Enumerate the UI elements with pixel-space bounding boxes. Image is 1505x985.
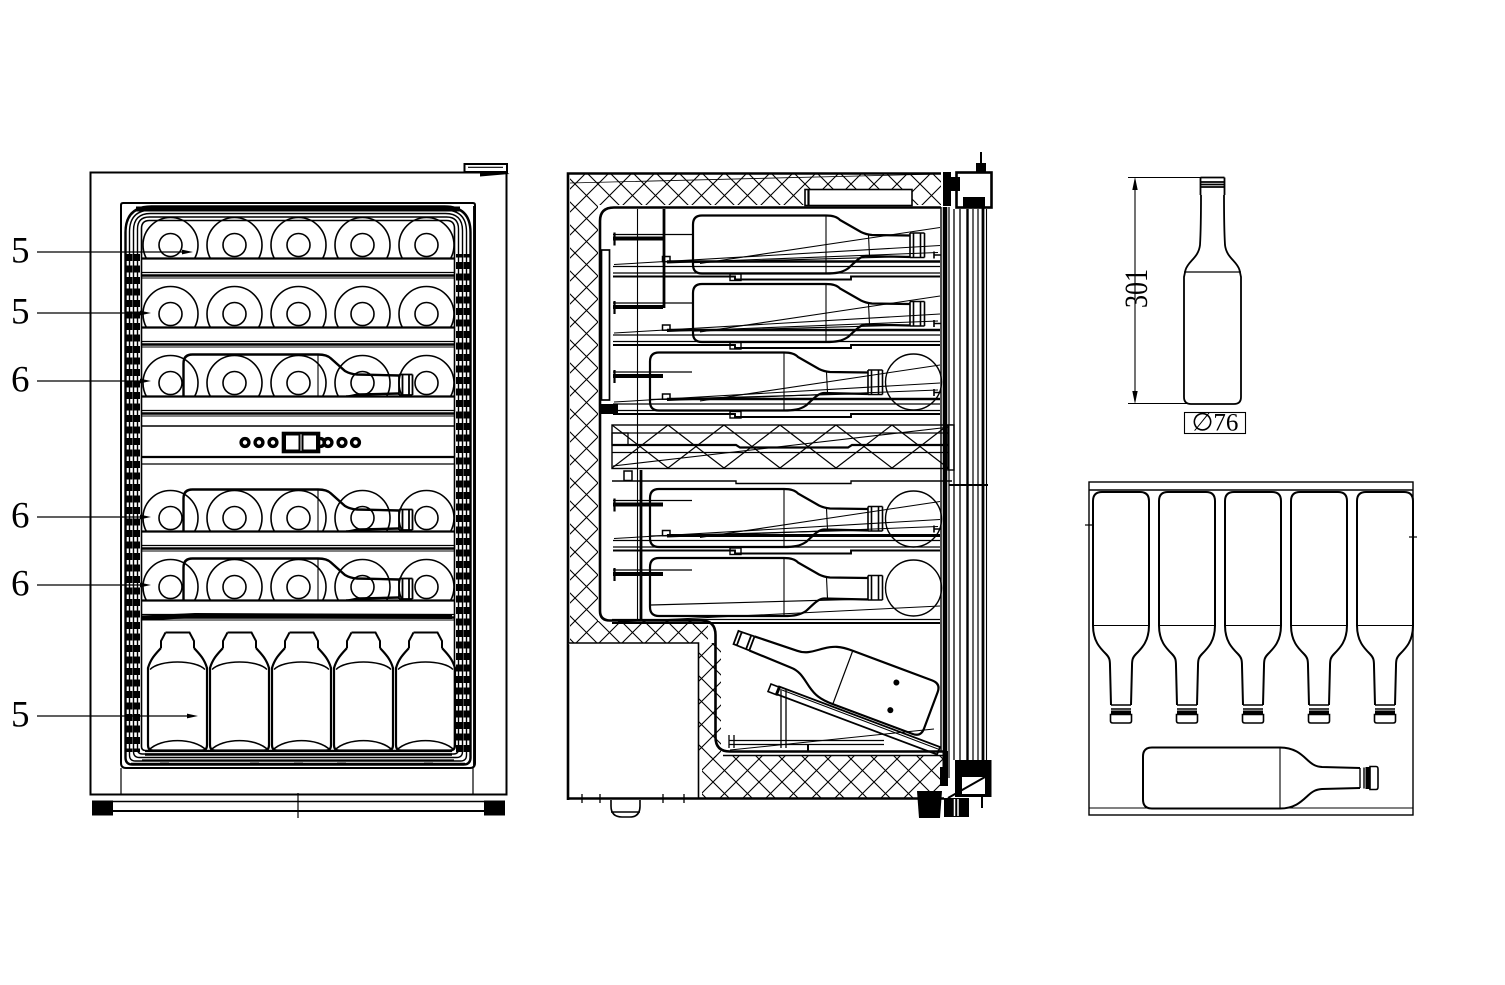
svg-text:5: 5 [11, 231, 30, 272]
svg-text:6: 6 [11, 564, 30, 605]
svg-text:6: 6 [11, 360, 30, 401]
svg-text:5: 5 [11, 292, 30, 333]
svg-text:5: 5 [11, 695, 30, 736]
svg-text:6: 6 [11, 496, 30, 537]
svg-text:∅76: ∅76 [1192, 410, 1239, 437]
svg-text:301: 301 [1119, 269, 1155, 308]
